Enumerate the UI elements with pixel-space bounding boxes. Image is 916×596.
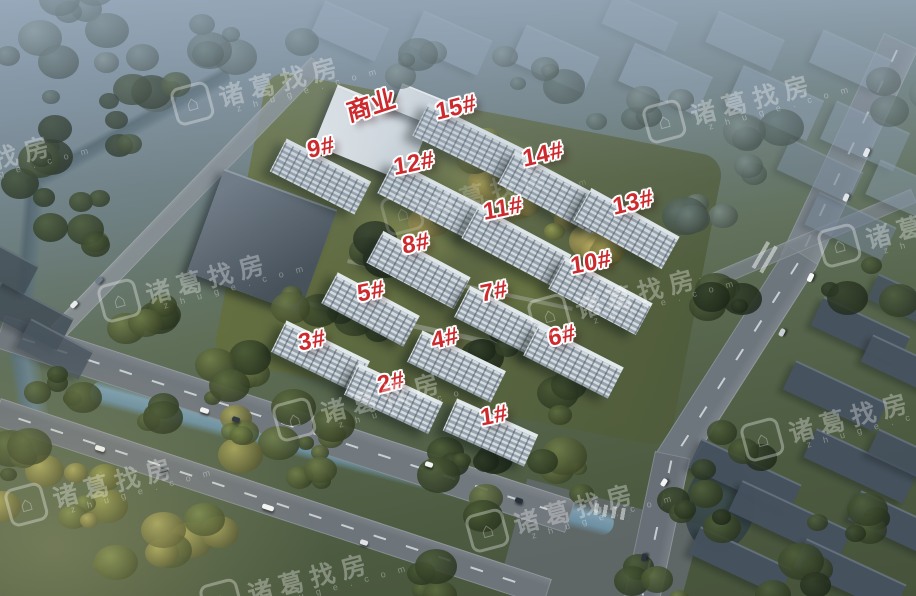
watermark-zhuge: ⌂诸葛找房z h u g e . c o m [168, 45, 347, 128]
watermark-domain-text: z h u g e . c o m [337, 381, 484, 429]
house-icon: ⌂ [463, 507, 511, 555]
watermark-zhuge: ⌂诸葛找房z h u g e . c o m [378, 155, 557, 238]
house-icon: ⌂ [640, 98, 688, 146]
watermark-domain-text: z h u g e . c o m [162, 262, 309, 310]
watermark-brand-text: 诸葛找房z h u g e . c o m [509, 473, 642, 541]
house-icon: ⌂ [197, 577, 245, 596]
watermark-zhuge: ⌂诸葛找房z h u g e . c o m [640, 63, 819, 146]
house-icon: ⌂ [2, 481, 50, 529]
house-icon: ⌂ [525, 292, 573, 340]
watermark-zhuge: ⌂诸葛找房z h u g e . c o m [2, 446, 181, 529]
watermark-brand-text: 诸葛找房z h u g e . c o m [784, 382, 916, 450]
watermark-brand-text: 诸葛找房z h u g e . c o m [243, 543, 376, 596]
watermark-zhuge: ⌂诸葛找房z h u g e . c o m [525, 257, 704, 340]
watermark-brand-text: 诸葛找房z h u g e . c o m [424, 156, 557, 224]
house-icon: ⌂ [738, 416, 786, 464]
watermarks-layer: ⌂诸葛找房z h u g e . c o m⌂诸葛找房z h u g e . c… [0, 0, 916, 596]
aerial-site-rendering: 商业15#9#12#14#11#13#8#10#5#7#3#4#6#2#1# ⌂… [0, 0, 916, 596]
watermark-zhuge: ⌂诸葛找房z h u g e . c o m [270, 361, 449, 444]
watermark-domain-text: z h u g e . c o m [530, 492, 677, 540]
watermark-zhuge: ⌂诸葛找房z h u g e . c o m [197, 542, 376, 596]
watermark-domain-text: z h u g e . c o m [264, 562, 411, 596]
watermark-brand-text: 诸葛找房z h u g e . c o m [316, 362, 449, 430]
house-icon: ⌂ [815, 222, 863, 270]
watermark-domain-text: z h u g e . c o m [69, 466, 216, 514]
watermark-brand-text: 诸葛找房z h u g e . c o m [686, 64, 819, 132]
watermark-domain-text: z h u g e . c o m [592, 277, 739, 325]
watermark-brand-text: 诸葛找房z h u g e . c o m [861, 188, 916, 256]
house-icon: ⌂ [168, 80, 216, 128]
watermark-zhuge: ⌂诸葛找房z h u g e . c o m [815, 187, 916, 270]
watermark-domain-text: z h u g e . c o m [882, 207, 916, 255]
watermark-brand-text: 诸葛找房z h u g e . c o m [214, 46, 347, 114]
house-icon: ⌂ [270, 396, 318, 444]
watermark-domain-text: z h u g e . c o m [0, 144, 94, 192]
watermark-brand-text: 诸葛找房z h u g e . c o m [141, 243, 274, 311]
watermark-zhuge: ⌂诸葛找房z h u g e . c o m [738, 381, 916, 464]
watermark-zhuge: ⌂诸葛找房z h u g e . c o m [463, 472, 642, 555]
watermark-brand-text: 诸葛找房z h u g e . c o m [0, 125, 59, 193]
watermark-brand-text: 诸葛找房z h u g e . c o m [571, 258, 704, 326]
house-icon: ⌂ [378, 190, 426, 238]
watermark-brand-text: 诸葛找房z h u g e . c o m [48, 447, 181, 515]
watermark-zhuge: ⌂诸葛找房z h u g e . c o m [95, 242, 274, 325]
watermark-domain-text: z h u g e . c o m [235, 65, 382, 113]
watermark-domain-text: z h u g e . c o m [445, 175, 592, 223]
watermark-zhuge: ⌂诸葛找房z h u g e . c o m [0, 124, 60, 207]
watermark-domain-text: z h u g e . c o m [707, 83, 854, 131]
watermark-domain-text: z h u g e . c o m [805, 401, 916, 449]
house-icon: ⌂ [95, 277, 143, 325]
